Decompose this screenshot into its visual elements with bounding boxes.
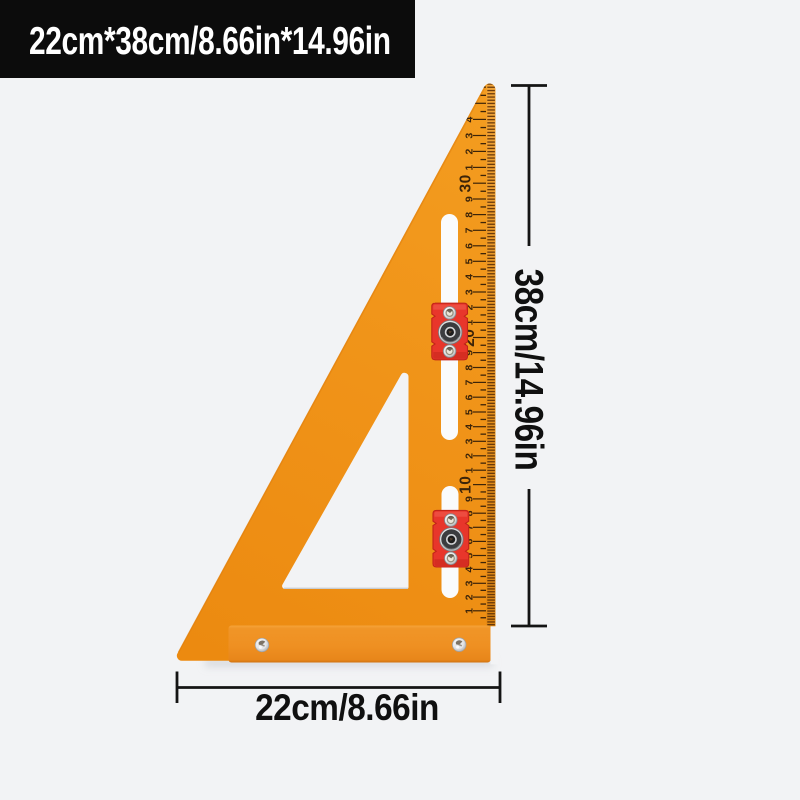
svg-text:3: 3 xyxy=(464,438,476,444)
svg-text:7: 7 xyxy=(464,380,476,386)
svg-text:8: 8 xyxy=(464,365,476,371)
svg-text:1: 1 xyxy=(464,467,476,473)
svg-text:22cm*38cm/8.66in*14.96in: 22cm*38cm/8.66in*14.96in xyxy=(29,20,391,63)
svg-text:4: 4 xyxy=(464,274,476,280)
svg-text:1: 1 xyxy=(464,608,476,614)
svg-text:10: 10 xyxy=(458,476,475,494)
svg-text:2: 2 xyxy=(464,453,476,459)
svg-text:8: 8 xyxy=(464,212,476,218)
svg-text:9: 9 xyxy=(464,496,476,502)
svg-text:6: 6 xyxy=(464,394,476,400)
svg-text:6: 6 xyxy=(464,243,476,249)
svg-text:2: 2 xyxy=(464,594,476,600)
svg-text:22cm/8.66in: 22cm/8.66in xyxy=(255,687,439,728)
svg-text:30: 30 xyxy=(458,174,475,192)
svg-text:5: 5 xyxy=(464,258,476,264)
svg-text:3: 3 xyxy=(464,133,476,139)
svg-text:2: 2 xyxy=(464,149,476,155)
svg-text:1: 1 xyxy=(464,165,476,171)
svg-text:38cm/14.96in: 38cm/14.96in xyxy=(507,269,552,471)
svg-text:3: 3 xyxy=(464,289,476,295)
svg-text:9: 9 xyxy=(464,196,476,202)
svg-text:4: 4 xyxy=(464,424,476,430)
svg-text:5: 5 xyxy=(464,409,476,415)
svg-text:7: 7 xyxy=(464,227,476,233)
svg-text:3: 3 xyxy=(464,580,476,586)
